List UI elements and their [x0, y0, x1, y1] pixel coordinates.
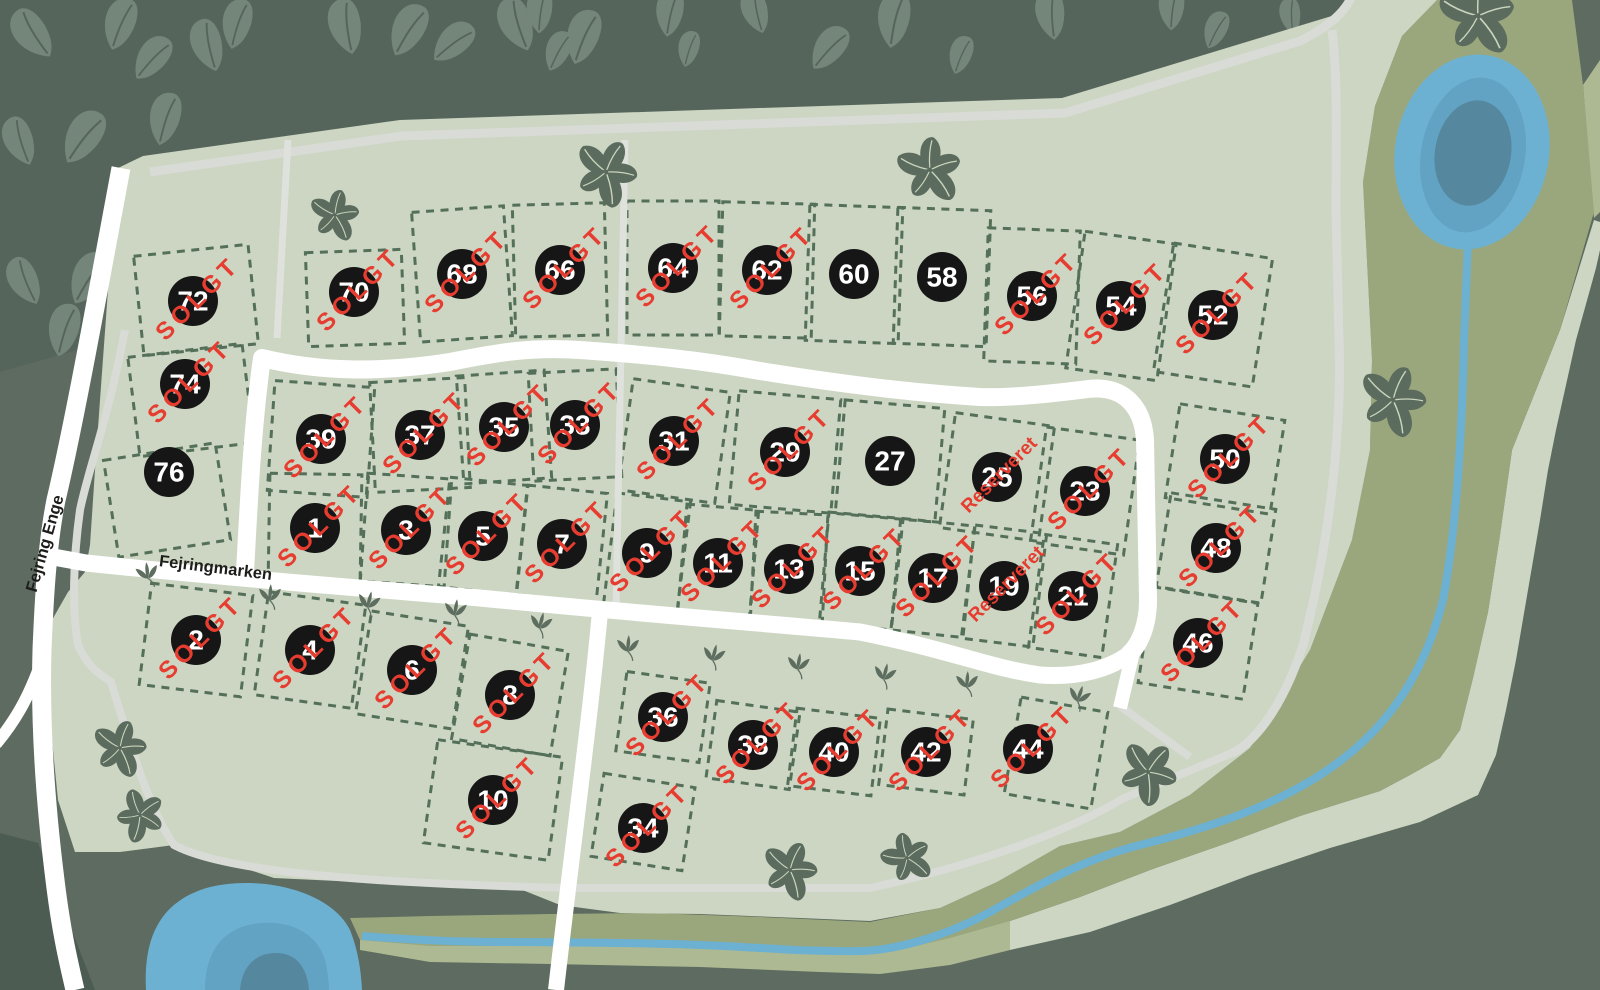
svg-text:60: 60: [838, 259, 869, 290]
svg-text:58: 58: [926, 262, 957, 293]
svg-text:76: 76: [153, 457, 184, 488]
svg-text:27: 27: [874, 446, 905, 477]
